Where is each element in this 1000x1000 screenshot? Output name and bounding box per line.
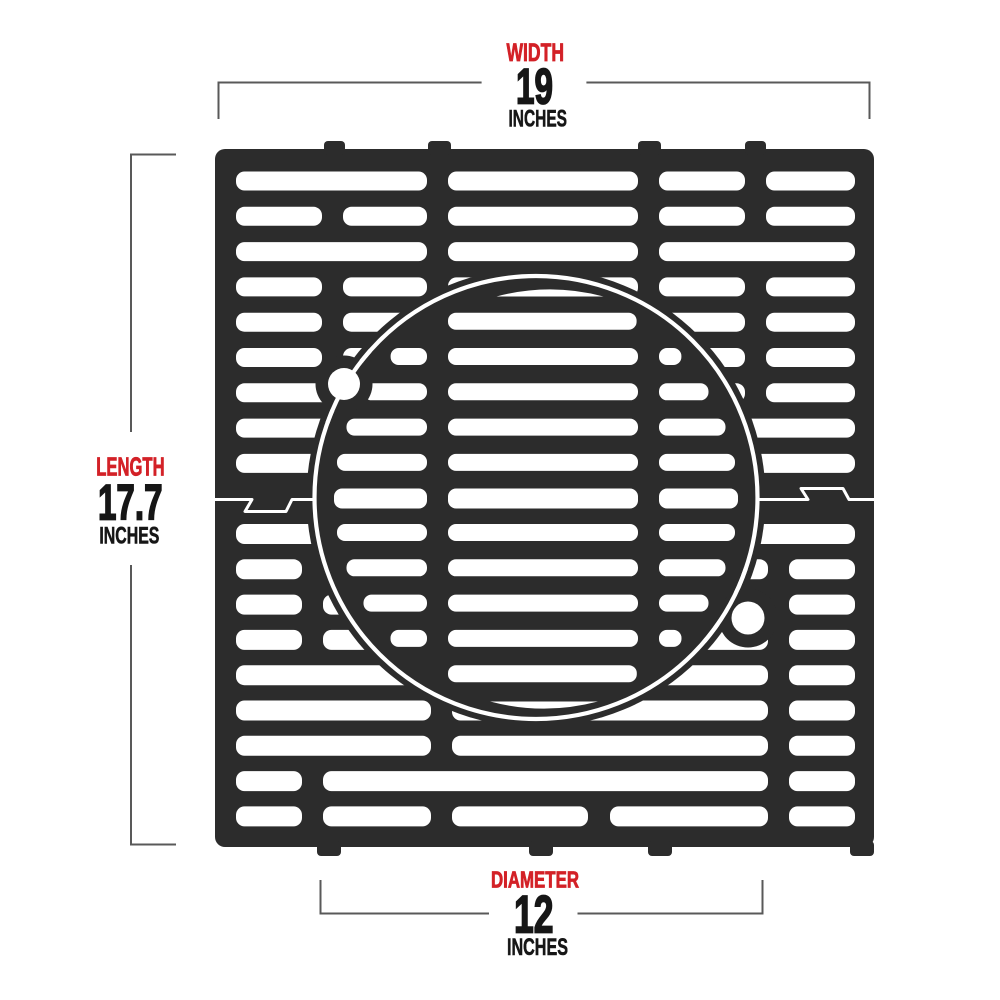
svg-text:INCHES: INCHES — [507, 934, 568, 961]
svg-text:INCHES: INCHES — [509, 106, 568, 133]
svg-text:INCHES: INCHES — [99, 523, 159, 550]
